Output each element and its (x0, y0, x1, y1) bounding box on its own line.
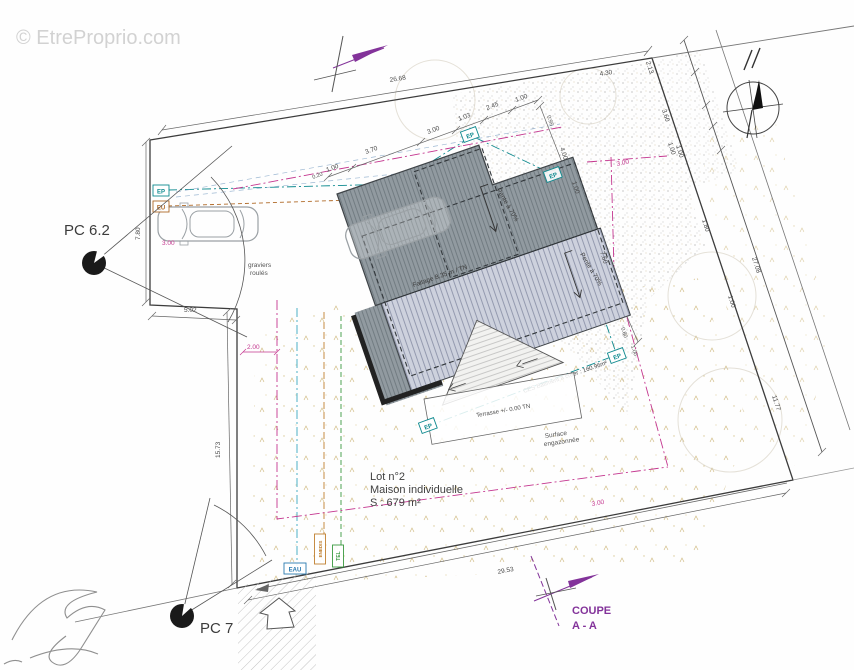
eu-sewage-line (168, 200, 352, 206)
section-marker-top-icon (314, 36, 388, 92)
coupe-label-1: COUPE (572, 605, 611, 617)
dim-3-70: 3.70 (364, 145, 379, 156)
lot-type: Maison individuelle (370, 484, 463, 496)
graviers-label-2: roulés (250, 270, 268, 277)
pc62-label: PC 6.2 (64, 222, 110, 239)
dim-3-00: 3.00 (426, 125, 441, 136)
graviers-label-1: graviers (248, 262, 272, 269)
lot-number: Lot n°2 (370, 471, 405, 483)
site-plan-canvas: © EtreProprio.com (0, 0, 854, 670)
dim-26-68: 26.68 (389, 74, 407, 84)
coupe-label-2: A - A (572, 620, 597, 632)
dim-1-00: 1.00 (325, 163, 340, 174)
lot-surface: S : 679 m² (370, 497, 421, 509)
ep-tag: EP (157, 190, 165, 196)
tel-tag: TEL (336, 551, 342, 560)
dim-0-20: 0.20 (312, 172, 324, 181)
dim-15-73: 15.73 (215, 441, 222, 458)
dim-1-80: 1.80 (700, 218, 711, 233)
eau-tag: EAU (289, 568, 302, 574)
dim-2-00: 2.00 (247, 344, 260, 351)
dim-3-00: 3.00 (162, 240, 175, 247)
signature-sketch (4, 590, 105, 665)
site-plan-page: © EtreProprio.com (0, 0, 854, 670)
watermark: © EtreProprio.com (16, 27, 181, 49)
dim-5-02: 5.02 (184, 307, 197, 314)
dim-7-80: 7.80 (135, 227, 142, 240)
pc7-label: PC 7 (200, 620, 233, 637)
enedis-tag: ENEDIS (318, 541, 323, 558)
